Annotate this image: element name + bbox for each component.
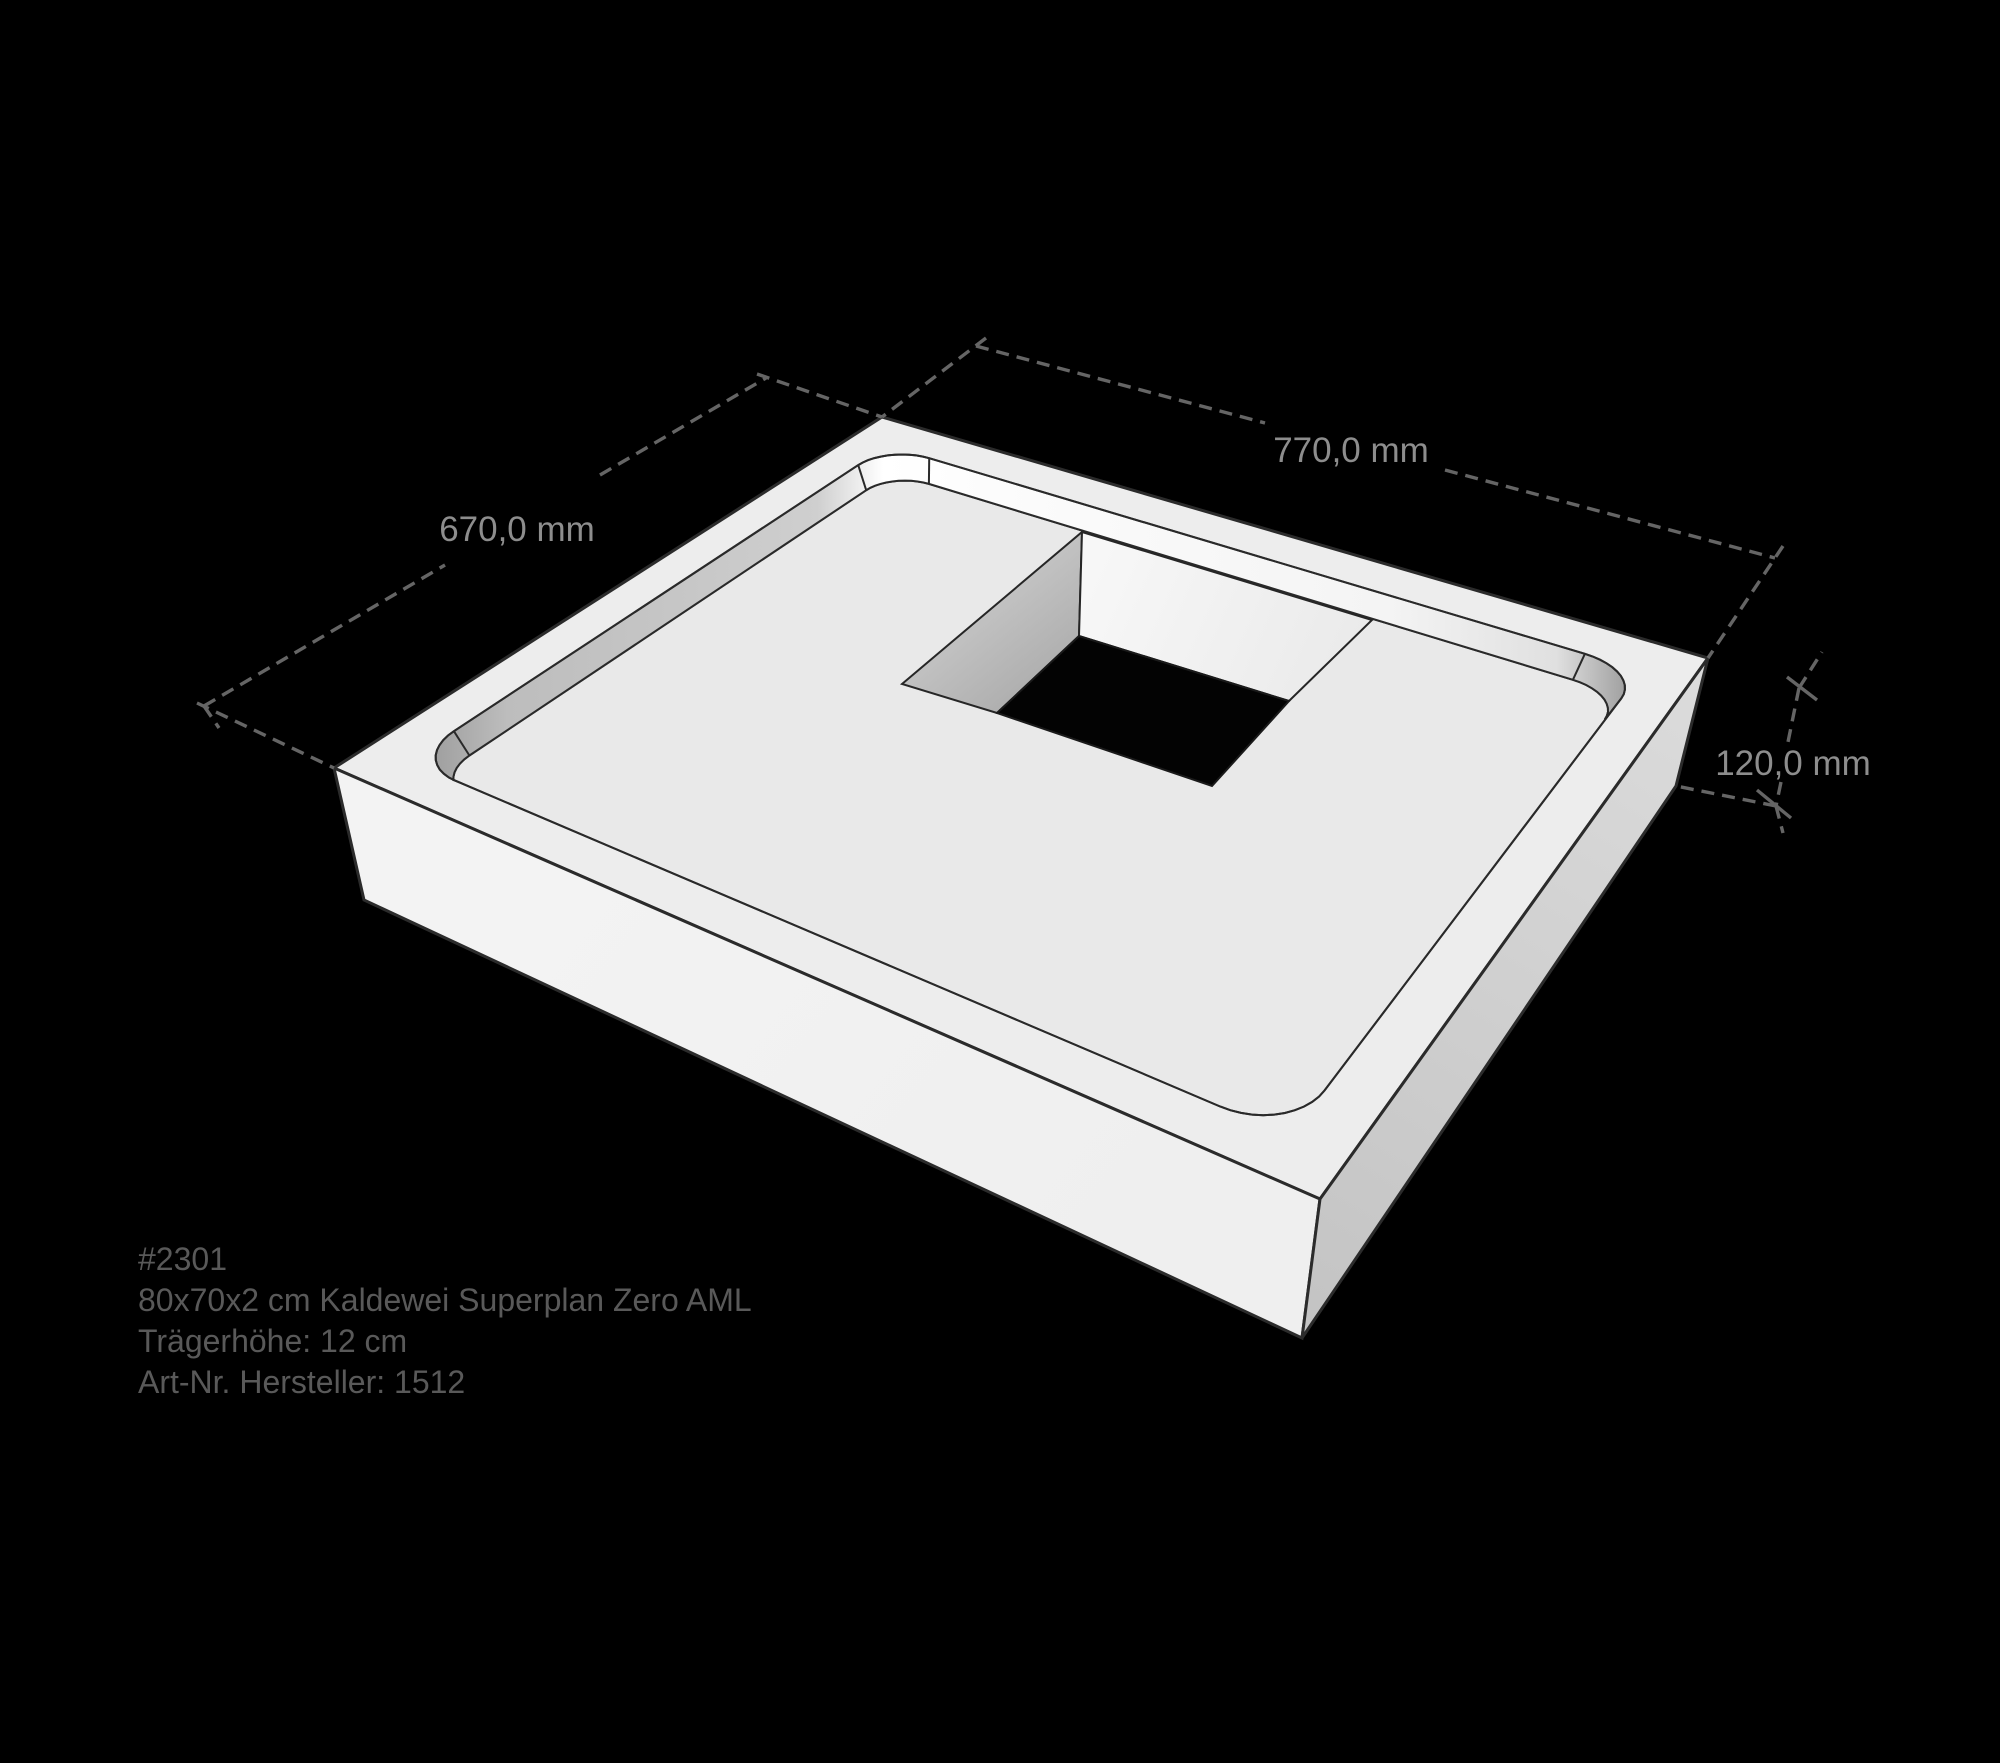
svg-text:80x70x2 cm Kaldewei Superplan: 80x70x2 cm Kaldewei Superplan Zero AML bbox=[138, 1282, 752, 1318]
svg-text:770,0 mm: 770,0 mm bbox=[1273, 431, 1429, 470]
svg-text:120,0 mm: 120,0 mm bbox=[1715, 744, 1871, 783]
svg-text:Art-Nr. Hersteller: 1512: Art-Nr. Hersteller: 1512 bbox=[138, 1364, 465, 1400]
svg-text:#2301: #2301 bbox=[138, 1241, 227, 1277]
svg-text:670,0 mm: 670,0 mm bbox=[439, 510, 595, 549]
svg-text:Trägerhöhe: 12 cm: Trägerhöhe: 12 cm bbox=[138, 1323, 407, 1359]
